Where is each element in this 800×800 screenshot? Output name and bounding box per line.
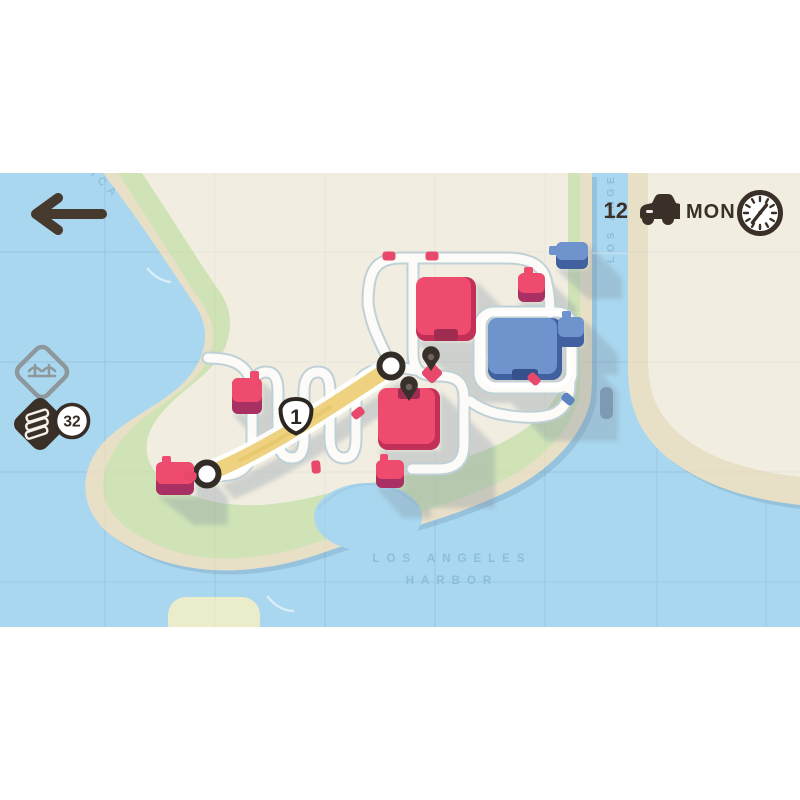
clock-icon xyxy=(734,187,786,239)
arrow-left-icon xyxy=(18,192,110,236)
day-label: MON xyxy=(686,199,738,225)
back-button[interactable] xyxy=(18,192,110,236)
building-red-large-a xyxy=(416,277,476,341)
red-car xyxy=(383,252,396,261)
harbor-label-line1: LOS ANGELES xyxy=(373,553,532,565)
red-car xyxy=(311,460,321,474)
motorway-endpoint[interactable] xyxy=(196,463,219,486)
south-beach xyxy=(168,597,260,627)
motorway-endpoint[interactable] xyxy=(380,355,403,378)
game-viewport[interactable]: 1 ICA LOS ANGE LOS ANGELES HARBOR xyxy=(0,173,800,627)
red-car xyxy=(426,252,439,261)
road-count: 32 xyxy=(63,414,80,431)
building-blue-large xyxy=(483,313,569,385)
vehicle-count: 12 xyxy=(580,196,628,226)
car-icon xyxy=(634,190,680,228)
route-number: 1 xyxy=(290,406,302,429)
road-inventory-button[interactable]: 32 xyxy=(6,388,96,460)
route-shield: 1 xyxy=(281,399,312,434)
letterbox-bottom xyxy=(0,627,800,800)
harbor-label-line2: HARBOR xyxy=(406,575,498,587)
letterbox-top xyxy=(0,0,800,173)
game-map[interactable]: 1 ICA LOS ANGE LOS ANGELES HARBOR xyxy=(0,173,800,627)
